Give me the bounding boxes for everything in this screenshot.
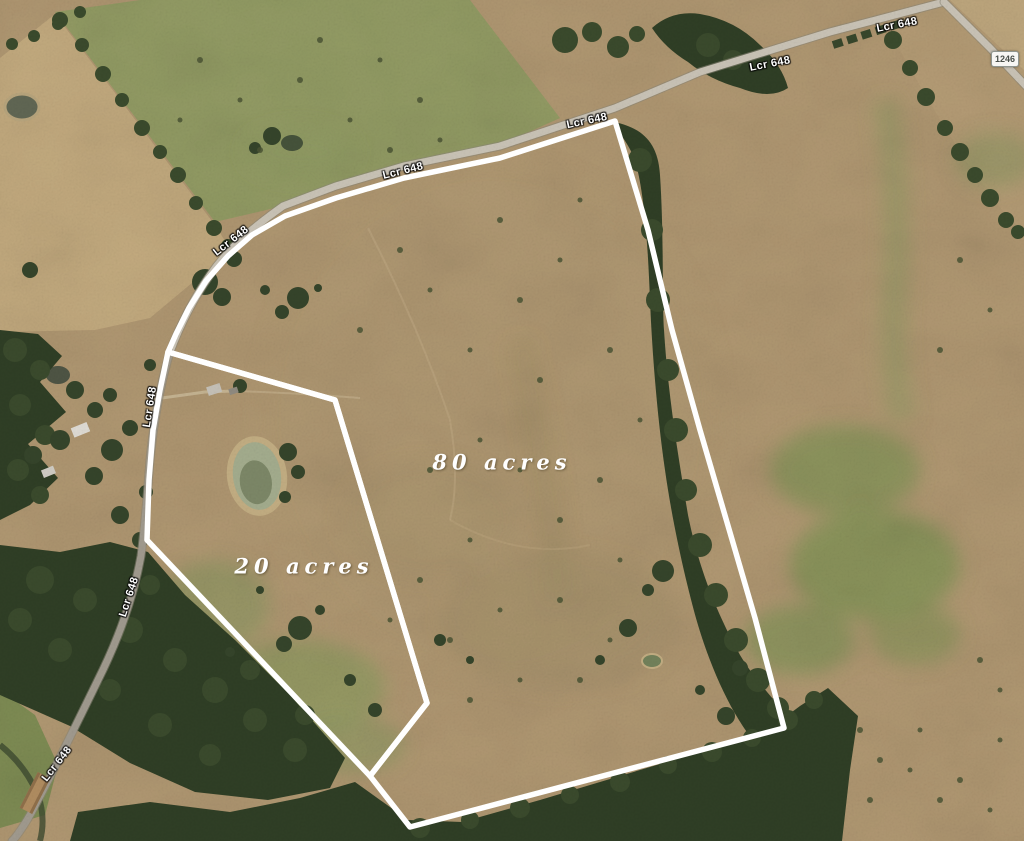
highway-badge: 1246	[991, 51, 1019, 67]
satellite-map-view[interactable]: Lcr 648 Lcr 648 Lcr 648 Lcr 648 Lcr 648 …	[0, 0, 1024, 841]
parcel-label-80-acres: 80 acres	[432, 450, 571, 475]
parcel-label-20-acres: 20 acres	[234, 554, 373, 579]
